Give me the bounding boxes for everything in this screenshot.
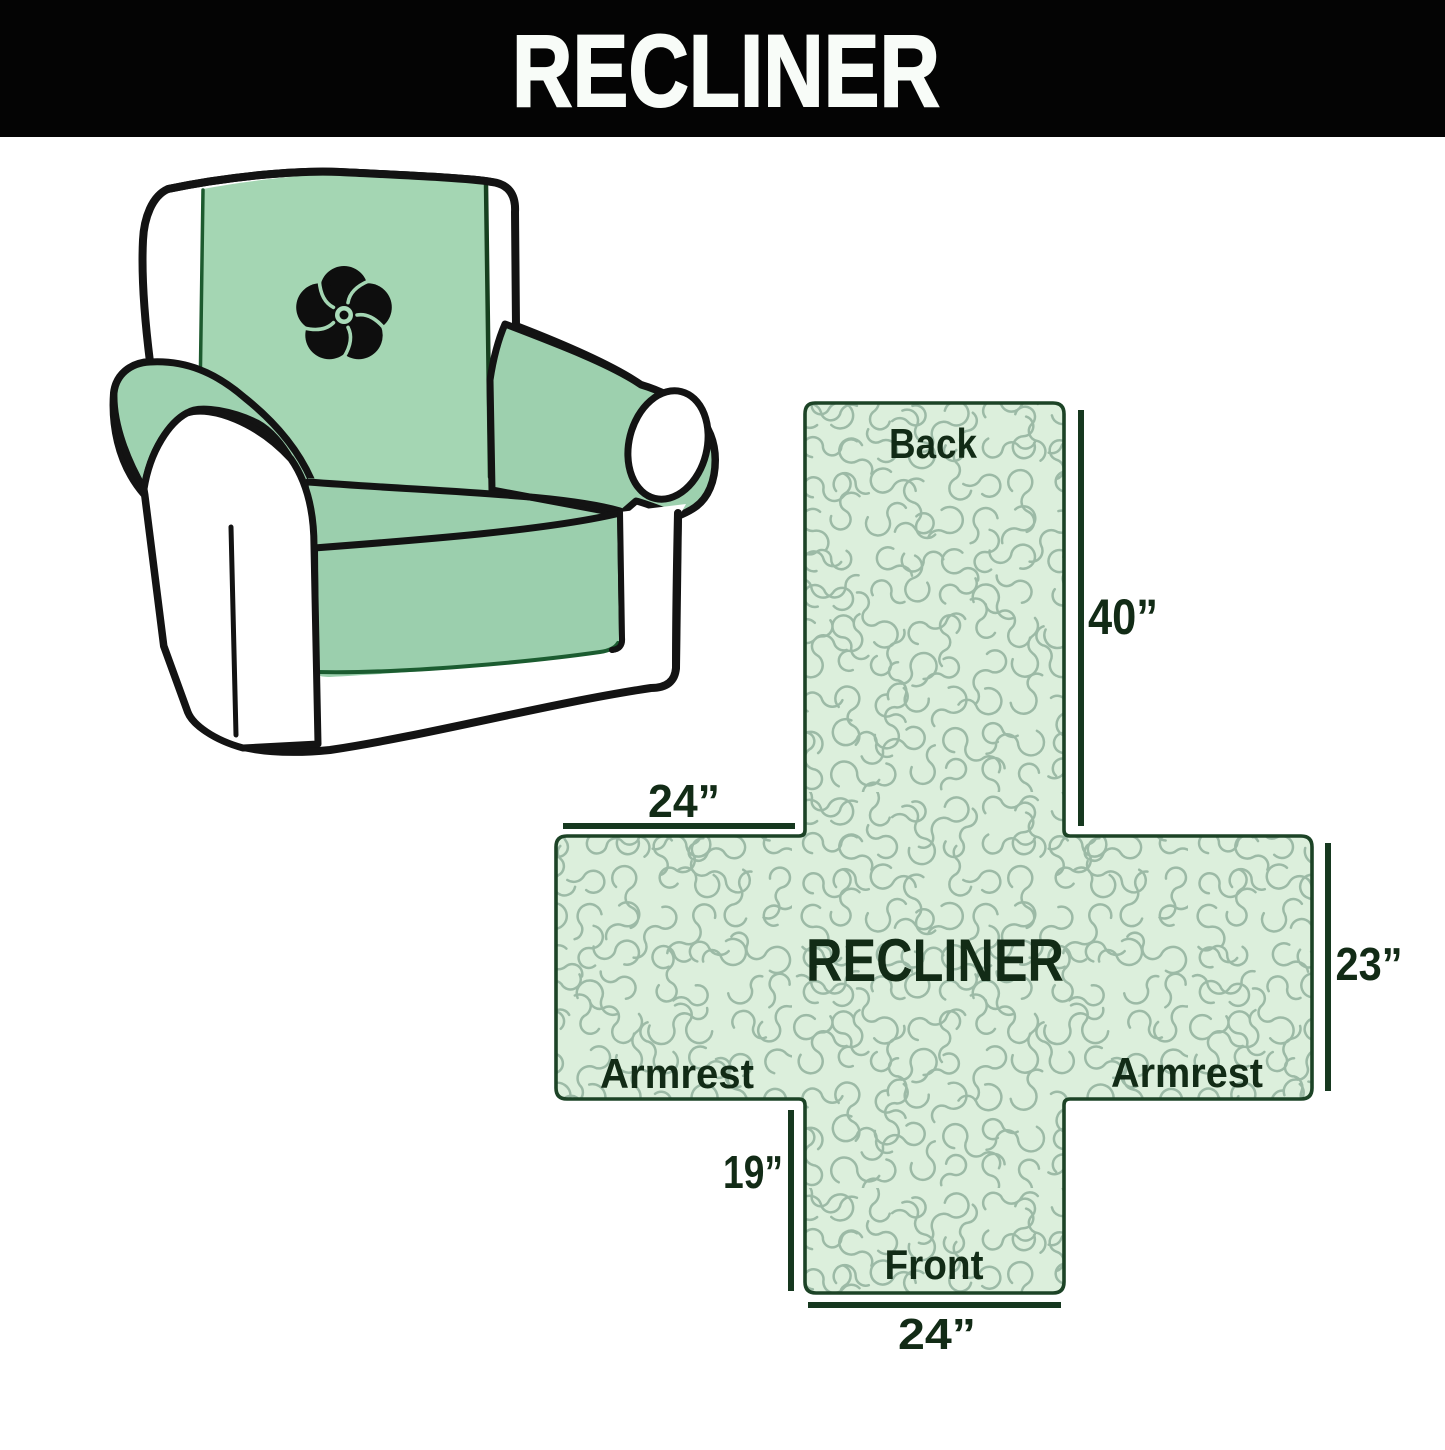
svg-text:19”: 19” — [723, 1146, 783, 1198]
svg-text:Front: Front — [885, 1241, 984, 1288]
svg-text:RECLINER: RECLINER — [806, 927, 1064, 994]
svg-text:Armrest: Armrest — [1111, 1049, 1263, 1096]
svg-text:24”: 24” — [648, 775, 720, 827]
svg-text:40”: 40” — [1088, 589, 1158, 645]
svg-text:Armrest: Armrest — [600, 1050, 754, 1097]
svg-text:24”: 24” — [898, 1310, 976, 1359]
svg-text:23”: 23” — [1336, 938, 1403, 990]
svg-text:RECLINER: RECLINER — [512, 14, 940, 128]
svg-text:Back: Back — [889, 420, 978, 467]
